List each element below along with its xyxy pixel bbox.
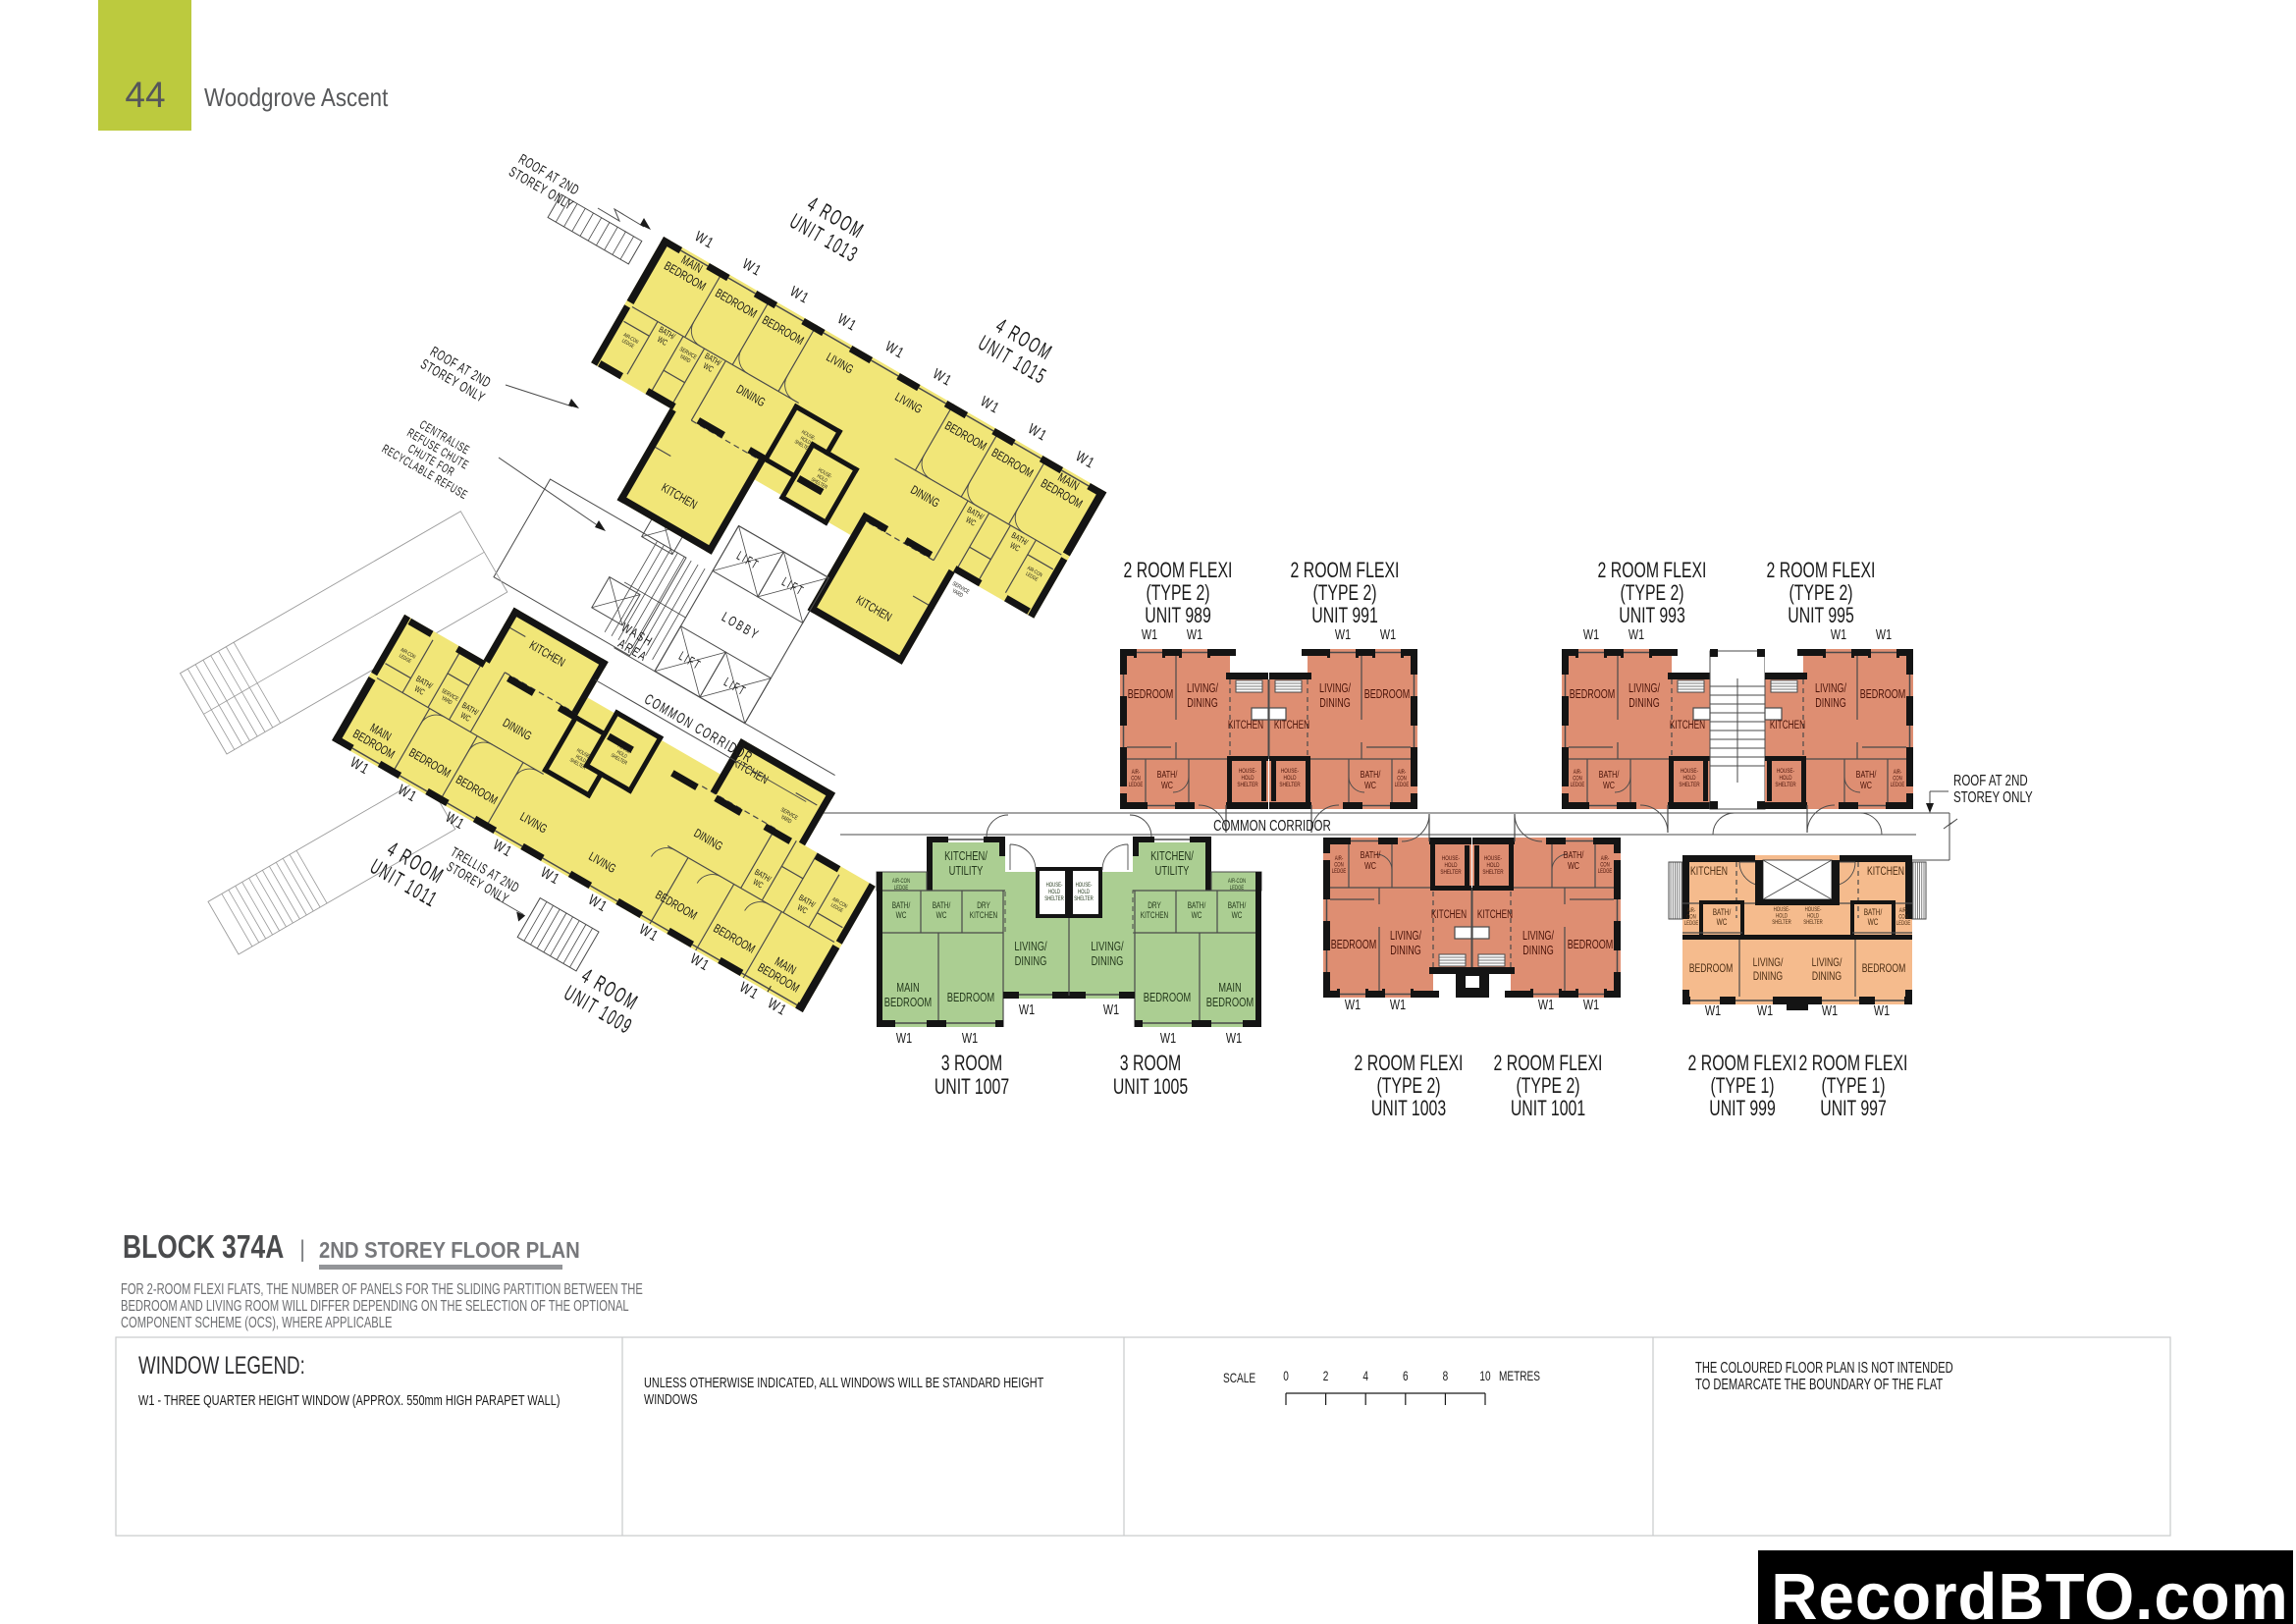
svg-text:DINING: DINING <box>1815 696 1846 710</box>
svg-text:SHELTER: SHELTER <box>1775 782 1795 788</box>
svg-text:UNIT 1003: UNIT 1003 <box>1371 1096 1446 1120</box>
svg-text:2 ROOM FLEXI: 2 ROOM FLEXI <box>1799 1051 1908 1075</box>
svg-text:WC: WC <box>936 910 947 920</box>
svg-text:LIVING/: LIVING/ <box>1319 681 1351 695</box>
svg-text:UNIT 991: UNIT 991 <box>1311 603 1378 627</box>
svg-text:DINING: DINING <box>1753 969 1783 983</box>
svg-text:44: 44 <box>125 75 165 115</box>
svg-text:W1: W1 <box>1103 1001 1119 1018</box>
svg-text:ROOF AT 2ND: ROOF AT 2ND <box>1953 773 2028 789</box>
svg-text:3 ROOM: 3 ROOM <box>1120 1051 1182 1075</box>
svg-text:UNIT 1001: UNIT 1001 <box>1511 1096 1585 1120</box>
svg-text:2 ROOM FLEXI: 2 ROOM FLEXI <box>1688 1051 1797 1075</box>
svg-text:HOLD: HOLD <box>1487 862 1500 869</box>
svg-text:BEDROOM: BEDROOM <box>1206 995 1254 1009</box>
svg-text:METRES: METRES <box>1499 1368 1540 1383</box>
svg-text:WC: WC <box>1232 910 1243 920</box>
svg-text:DINING: DINING <box>1015 953 1047 968</box>
svg-text:BEDROOM: BEDROOM <box>1862 961 1906 975</box>
svg-text:BATH/: BATH/ <box>1856 770 1877 781</box>
svg-text:(TYPE 2): (TYPE 2) <box>1620 580 1683 605</box>
svg-text:BATH/: BATH/ <box>1599 770 1620 781</box>
svg-text:DINING: DINING <box>1629 696 1660 710</box>
svg-text:RecordBTO.com: RecordBTO.com <box>1771 1560 2288 1624</box>
svg-text:HOUSE-: HOUSE- <box>1281 768 1299 775</box>
svg-text:HOLD: HOLD <box>1048 890 1060 895</box>
svg-text:CON: CON <box>1334 863 1344 869</box>
svg-text:AIR-: AIR- <box>1132 770 1141 776</box>
svg-text:SHELTER: SHELTER <box>1237 782 1257 788</box>
svg-text:AIR-: AIR- <box>1687 908 1696 914</box>
svg-text:W1: W1 <box>1831 626 1846 643</box>
svg-text:UTILITY: UTILITY <box>1155 863 1190 878</box>
svg-text:BATH/: BATH/ <box>892 900 911 910</box>
svg-text:AIR-CON: AIR-CON <box>892 879 910 885</box>
svg-text:COMMON CORRIDOR: COMMON CORRIDOR <box>1213 818 1331 835</box>
svg-text:WC: WC <box>1868 917 1879 927</box>
svg-text:DINING: DINING <box>1390 944 1421 957</box>
svg-text:AIR-: AIR- <box>1398 770 1407 776</box>
svg-text:(TYPE 2): (TYPE 2) <box>1789 580 1852 605</box>
svg-text:(TYPE 1): (TYPE 1) <box>1710 1073 1774 1098</box>
svg-text:HOLD: HOLD <box>1683 775 1696 782</box>
svg-text:2 ROOM FLEXI: 2 ROOM FLEXI <box>1767 558 1876 582</box>
svg-text:CON: CON <box>1893 777 1902 783</box>
svg-text:WC: WC <box>1717 917 1728 927</box>
svg-text:WC: WC <box>896 910 907 920</box>
svg-text:UNIT 1007: UNIT 1007 <box>934 1074 1009 1099</box>
svg-text:BEDROOM AND LIVING ROOM WILL D: BEDROOM AND LIVING ROOM WILL DIFFER DEPE… <box>121 1298 629 1315</box>
svg-text:KITCHEN: KITCHEN <box>1770 720 1805 731</box>
svg-text:W1: W1 <box>1583 626 1599 643</box>
svg-text:W1: W1 <box>1583 997 1599 1013</box>
svg-text:WC: WC <box>1364 781 1376 791</box>
svg-text:W1: W1 <box>962 1030 978 1047</box>
svg-text:LIVING/: LIVING/ <box>1187 681 1218 695</box>
svg-text:SHELTER: SHELTER <box>1803 920 1823 926</box>
svg-text:WINDOW LEGEND:: WINDOW LEGEND: <box>138 1352 305 1380</box>
svg-text:SHELTER: SHELTER <box>1679 782 1699 788</box>
svg-text:WC: WC <box>1603 781 1615 791</box>
svg-text:W1: W1 <box>1160 1030 1176 1047</box>
svg-text:HOLD: HOLD <box>1807 914 1819 920</box>
svg-text:LEDGE: LEDGE <box>1684 921 1699 927</box>
svg-text:BATH/: BATH/ <box>1864 907 1883 917</box>
svg-text:BEDROOM: BEDROOM <box>1144 990 1191 1004</box>
svg-text:KITCHEN: KITCHEN <box>1141 910 1168 920</box>
svg-text:DINING: DINING <box>1187 696 1218 710</box>
svg-text:HOLD: HOLD <box>1284 775 1297 782</box>
svg-text:BEDROOM: BEDROOM <box>884 995 932 1009</box>
svg-text:2 ROOM FLEXI: 2 ROOM FLEXI <box>1494 1051 1603 1075</box>
svg-text:UNIT 1005: UNIT 1005 <box>1113 1074 1188 1099</box>
svg-text:BLOCK 374A: BLOCK 374A <box>123 1228 284 1265</box>
svg-text:FOR 2-ROOM FLEXI FLATS, THE NU: FOR 2-ROOM FLEXI FLATS, THE NUMBER OF PA… <box>121 1281 643 1298</box>
svg-text:BEDROOM: BEDROOM <box>1860 687 1906 701</box>
svg-text:LEDGE: LEDGE <box>1571 783 1585 788</box>
svg-text:CON: CON <box>1131 777 1141 783</box>
svg-text:(TYPE 2): (TYPE 2) <box>1146 580 1209 605</box>
svg-text:WINDOWS: WINDOWS <box>644 1391 698 1408</box>
svg-text:DINING: DINING <box>1812 969 1842 983</box>
svg-text:LEDGE: LEDGE <box>1332 869 1347 875</box>
svg-text:2 ROOM FLEXI: 2 ROOM FLEXI <box>1598 558 1707 582</box>
svg-text:KITCHEN/: KITCHEN/ <box>1150 848 1194 863</box>
svg-text:W1: W1 <box>1390 997 1406 1013</box>
svg-text:SCALE: SCALE <box>1223 1370 1255 1385</box>
svg-text:6: 6 <box>1403 1368 1409 1383</box>
svg-text:LIVING/: LIVING/ <box>1522 929 1554 943</box>
svg-text:W1: W1 <box>896 1030 912 1047</box>
svg-text:HOLD: HOLD <box>1776 914 1788 920</box>
svg-text:BATH/: BATH/ <box>933 900 951 910</box>
svg-text:LIVING/: LIVING/ <box>1753 955 1784 969</box>
svg-text:STOREY ONLY: STOREY ONLY <box>1953 789 2033 806</box>
svg-text:HOUSE-: HOUSE- <box>1484 855 1502 862</box>
svg-text:WC: WC <box>1568 861 1579 872</box>
svg-text:UNIT 993: UNIT 993 <box>1619 603 1685 627</box>
svg-text:W1: W1 <box>1822 1002 1838 1019</box>
svg-text:DRY: DRY <box>977 900 990 910</box>
svg-text:HOLD: HOLD <box>1445 862 1458 869</box>
svg-text:DINING: DINING <box>1522 944 1554 957</box>
svg-text:UNIT 995: UNIT 995 <box>1788 603 1854 627</box>
svg-text:|: | <box>299 1236 305 1263</box>
svg-text:BATH/: BATH/ <box>1188 900 1206 910</box>
svg-text:8: 8 <box>1443 1368 1449 1383</box>
svg-text:BEDROOM: BEDROOM <box>1364 687 1411 701</box>
svg-text:KITCHEN/: KITCHEN/ <box>944 848 988 863</box>
svg-text:UNIT 999: UNIT 999 <box>1709 1096 1776 1120</box>
svg-text:HOLD: HOLD <box>1242 775 1255 782</box>
svg-text:LIVING/: LIVING/ <box>1812 955 1842 969</box>
svg-text:W1: W1 <box>1874 1002 1890 1019</box>
svg-text:SHELTER: SHELTER <box>1440 869 1461 876</box>
svg-text:UNIT 989: UNIT 989 <box>1145 603 1211 627</box>
svg-text:KITCHEN: KITCHEN <box>1867 864 1904 878</box>
svg-text:KITCHEN: KITCHEN <box>1670 720 1705 731</box>
svg-text:BEDROOM: BEDROOM <box>947 990 994 1004</box>
svg-text:DINING: DINING <box>1319 696 1351 710</box>
svg-text:LEDGE: LEDGE <box>1598 869 1613 875</box>
svg-text:W1 - THREE QUARTER HEIGHT WI: W1 - THREE QUARTER HEIGHT WINDOW (APPROX… <box>138 1392 561 1409</box>
svg-text:SHELTER: SHELTER <box>1772 920 1791 926</box>
svg-text:3 ROOM: 3 ROOM <box>941 1051 1003 1075</box>
svg-text:COMPONENT SCHEME (OCS), WHERE: COMPONENT SCHEME (OCS), WHERE APPLICABLE <box>121 1315 392 1331</box>
svg-text:LIVING/: LIVING/ <box>1091 939 1124 953</box>
svg-text:W1: W1 <box>1335 626 1351 643</box>
svg-text:HOUSE-: HOUSE- <box>1442 855 1460 862</box>
svg-text:BATH/: BATH/ <box>1157 770 1178 781</box>
svg-text:AIR-CON: AIR-CON <box>1228 879 1246 885</box>
svg-text:HOUSE-: HOUSE- <box>1774 907 1790 913</box>
svg-text:BATH/: BATH/ <box>1361 850 1381 861</box>
svg-text:HOUSE-: HOUSE- <box>1805 907 1822 913</box>
svg-text:2 ROOM FLEXI: 2 ROOM FLEXI <box>1355 1051 1464 1075</box>
svg-text:W1: W1 <box>1380 626 1396 643</box>
svg-text:BATH/: BATH/ <box>1228 900 1247 910</box>
svg-text:WC: WC <box>1860 781 1872 791</box>
svg-text:10: 10 <box>1479 1368 1490 1383</box>
svg-text:LEDGE: LEDGE <box>1891 783 1905 788</box>
svg-text:TO DEMARCATE THE BOUNDARY OF T: TO DEMARCATE THE BOUNDARY OF THE FLAT <box>1695 1377 1944 1393</box>
svg-text:HOLD: HOLD <box>1780 775 1792 782</box>
svg-text:W1: W1 <box>1538 997 1554 1013</box>
svg-text:CON: CON <box>1573 777 1582 783</box>
svg-text:WC: WC <box>1364 861 1376 872</box>
svg-text:SHELTER: SHELTER <box>1279 782 1300 788</box>
svg-text:LIVING/: LIVING/ <box>1014 939 1047 953</box>
svg-text:AIR-: AIR- <box>1601 856 1610 862</box>
svg-text:CON: CON <box>1686 915 1696 921</box>
svg-text:0: 0 <box>1283 1368 1289 1383</box>
svg-text:THE COLOURED FLOOR PLAN IS NOT: THE COLOURED FLOOR PLAN IS NOT INTENDED <box>1695 1360 1953 1377</box>
svg-text:W1: W1 <box>1345 997 1361 1013</box>
svg-text:W1: W1 <box>1876 626 1892 643</box>
svg-text:SHELTER: SHELTER <box>1482 869 1503 876</box>
svg-text:2 ROOM FLEXI: 2 ROOM FLEXI <box>1124 558 1233 582</box>
svg-text:BEDROOM: BEDROOM <box>1331 938 1377 951</box>
svg-text:KITCHEN: KITCHEN <box>1690 864 1728 878</box>
svg-text:LIVING/: LIVING/ <box>1629 681 1660 695</box>
svg-text:SHELTER: SHELTER <box>1074 896 1094 902</box>
svg-text:(TYPE 2): (TYPE 2) <box>1376 1073 1440 1098</box>
svg-text:W1: W1 <box>1019 1001 1035 1018</box>
svg-text:4: 4 <box>1362 1368 1368 1383</box>
svg-text:W1: W1 <box>1705 1002 1721 1019</box>
svg-text:2: 2 <box>1323 1368 1329 1383</box>
svg-text:UNIT 997: UNIT 997 <box>1820 1096 1887 1120</box>
svg-text:WC: WC <box>1161 781 1173 791</box>
svg-text:LIVING/: LIVING/ <box>1390 929 1421 943</box>
svg-text:(TYPE 2): (TYPE 2) <box>1312 580 1376 605</box>
svg-text:LEDGE: LEDGE <box>894 886 909 892</box>
svg-text:HOUSE-: HOUSE- <box>1046 883 1063 889</box>
svg-text:AIR-: AIR- <box>1335 856 1344 862</box>
svg-text:HOUSE-: HOUSE- <box>1239 768 1256 775</box>
svg-text:CON: CON <box>1600 863 1610 869</box>
svg-text:MAIN: MAIN <box>896 980 919 995</box>
svg-text:UNLESS OTHERWISE INDICATED, A: UNLESS OTHERWISE INDICATED, ALL WINDOWS … <box>644 1375 1043 1391</box>
svg-text:LEDGE: LEDGE <box>1395 783 1410 788</box>
svg-text:LEDGE: LEDGE <box>1230 886 1245 892</box>
svg-text:KITCHEN: KITCHEN <box>1477 909 1513 921</box>
svg-text:2 ROOM FLEXI: 2 ROOM FLEXI <box>1291 558 1400 582</box>
svg-text:UTILITY: UTILITY <box>949 863 984 878</box>
svg-text:DINING: DINING <box>1092 953 1124 968</box>
svg-text:BATH/: BATH/ <box>1713 907 1732 917</box>
svg-text:HOUSE-: HOUSE- <box>1681 768 1698 775</box>
svg-text:BEDROOM: BEDROOM <box>1570 687 1616 701</box>
svg-text:W1: W1 <box>1142 626 1157 643</box>
svg-text:AIR-: AIR- <box>1899 908 1908 914</box>
svg-text:BEDROOM: BEDROOM <box>1128 687 1174 701</box>
svg-text:LEDGE: LEDGE <box>1896 921 1911 927</box>
svg-text:HOUSE-: HOUSE- <box>1777 768 1794 775</box>
svg-text:BEDROOM: BEDROOM <box>1568 938 1614 951</box>
svg-text:BATH/: BATH/ <box>1564 850 1584 861</box>
svg-text:AIR-: AIR- <box>1894 770 1902 776</box>
svg-text:LIVING/: LIVING/ <box>1815 681 1846 695</box>
svg-text:KITCHEN: KITCHEN <box>1228 720 1263 731</box>
svg-text:W1: W1 <box>1629 626 1644 643</box>
svg-text:KITCHEN: KITCHEN <box>1431 909 1467 921</box>
svg-text:(TYPE 2): (TYPE 2) <box>1516 1073 1579 1098</box>
svg-text:HOUSE-: HOUSE- <box>1076 883 1093 889</box>
svg-text:W1: W1 <box>1226 1030 1242 1047</box>
svg-text:SHELTER: SHELTER <box>1044 896 1064 902</box>
svg-text:AIR-: AIR- <box>1574 770 1582 776</box>
svg-text:KITCHEN: KITCHEN <box>1274 720 1309 731</box>
svg-text:2ND STOREY FLOOR PLAN: 2ND STOREY FLOOR PLAN <box>319 1237 580 1263</box>
svg-text:HOLD: HOLD <box>1078 890 1090 895</box>
svg-text:W1: W1 <box>1187 626 1202 643</box>
svg-text:W1: W1 <box>1757 1002 1773 1019</box>
svg-text:DRY: DRY <box>1148 900 1161 910</box>
svg-text:LEDGE: LEDGE <box>1129 783 1144 788</box>
svg-text:KITCHEN: KITCHEN <box>970 910 997 920</box>
svg-text:MAIN: MAIN <box>1218 980 1241 995</box>
svg-text:(TYPE 1): (TYPE 1) <box>1821 1073 1885 1098</box>
svg-text:BEDROOM: BEDROOM <box>1689 961 1734 975</box>
svg-text:CON: CON <box>1898 915 1908 921</box>
svg-text:WC: WC <box>1192 910 1202 920</box>
svg-text:Woodgrove Ascent: Woodgrove Ascent <box>204 82 389 112</box>
svg-text:BATH/: BATH/ <box>1361 770 1381 781</box>
svg-text:CON: CON <box>1397 777 1407 783</box>
